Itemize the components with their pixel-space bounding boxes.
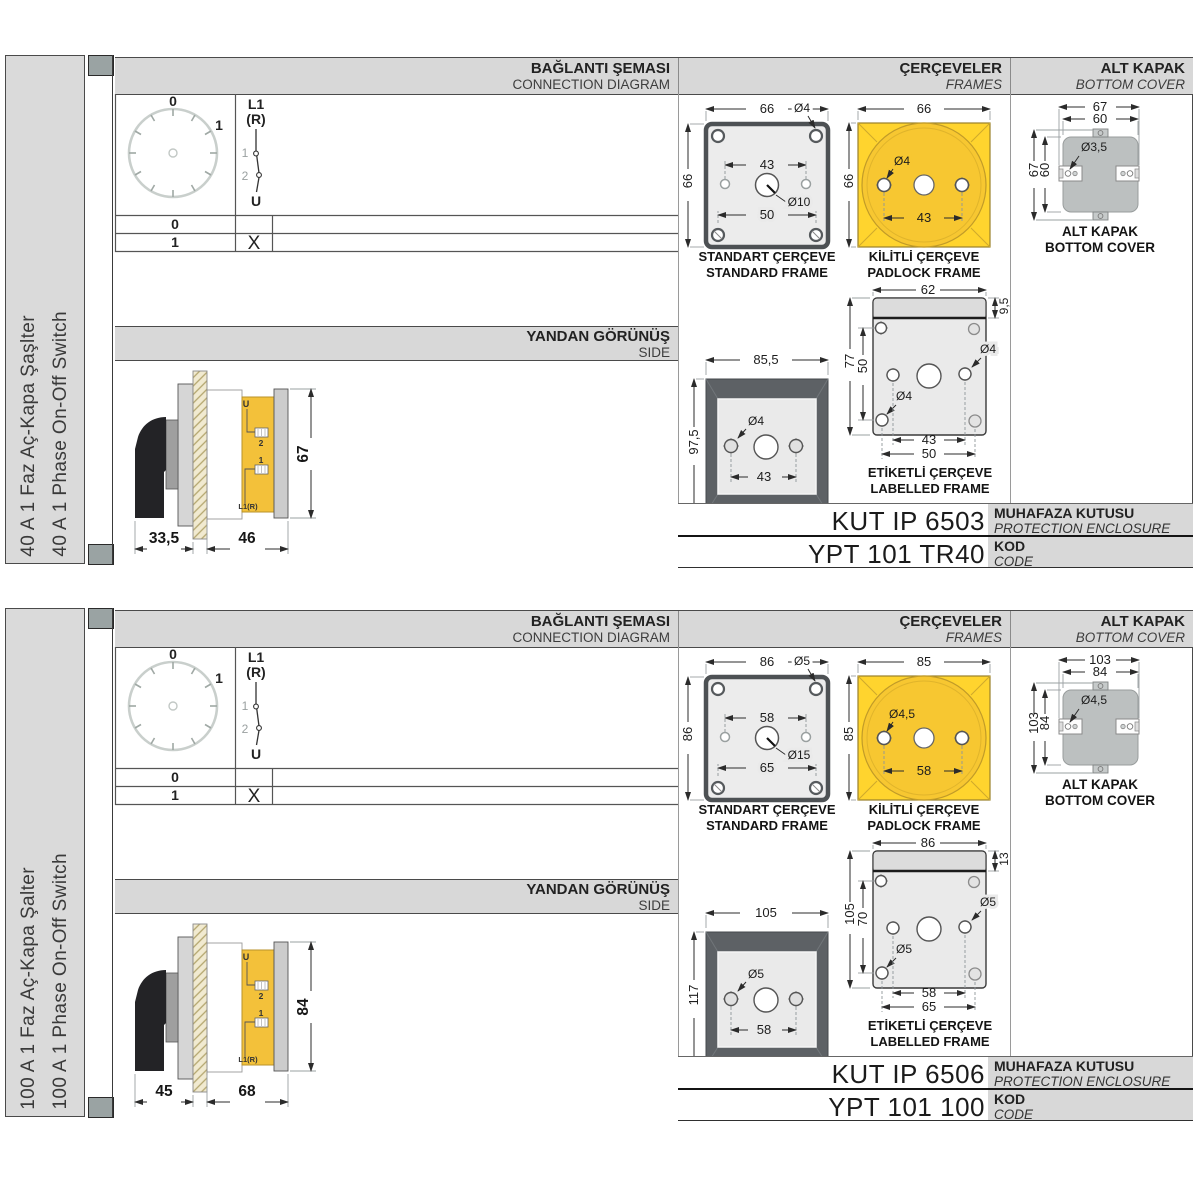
dim-handle-depth: 45 [155,1083,173,1100]
dim-hole-spacing: 58 [760,710,774,725]
dim-cover-width-inner: 60 [1093,111,1107,126]
table-pos-1: 1 [171,787,179,803]
dim-body-width: 68 [238,1083,256,1100]
mounting-panel [193,371,207,539]
dim-frame-width: 85 [917,654,931,669]
rotary-dial: 0 1 [129,646,223,750]
dim-cover-height-inner: 60 [1037,163,1052,177]
code-row: YPT 101 TR40 KOD CODE [678,537,1193,568]
code-label-en: CODE [994,554,1193,569]
handle-hub [166,973,178,1042]
table-mark-1: X [248,786,261,807]
catalog-page: 40 A 1 Faz Aç-Kapa Şaşlter 40 A 1 Phase … [0,0,1200,1121]
handle [135,417,166,518]
dim-hole-bottom: Ø4 [896,389,912,403]
dim-hole-mid: Ø4 [980,342,996,356]
terminal-2-label: 2 [259,438,264,448]
handle [135,970,166,1071]
labelled-frame-drawing: 86 13 105 70 Ø5 Ø5 58 65 ETİKETLİ ÇERÇEV… [840,840,1010,1052]
standard-frame-label-tr: STANDART ÇERÇEVE [699,802,836,817]
cover-divider [1010,647,1011,1056]
dim-hole: Ø4 [748,414,764,428]
binding-mark-bottom [88,544,114,565]
dim-cover-width-inner: 84 [1093,664,1107,679]
dial-position-1: 1 [215,670,223,686]
enclosure-label-en: PROTECTION ENCLOSURE [994,521,1193,536]
terminal-l1r-label: L1(R) [238,502,258,511]
dim-frame-height: 66 [841,174,856,188]
side-view-header-tr: YANDAN GÖRÜNÜŞ [115,881,670,898]
dim-bottom-inner: 43 [922,432,936,447]
code-label-tr: KOD [994,539,1193,554]
code-label: KOD CODE [988,537,1193,567]
terminal-1-label: 1 [259,1008,264,1018]
dim-handle-depth: 33,5 [149,530,180,547]
terminal-u-label: U [243,952,250,962]
dim-label-strip: 9,5 [997,297,1011,314]
dim-hole: Ø4 [894,154,910,168]
enclosure-label: MUHAFAZA KUTUSU PROTECTION ENCLOSURE [988,1057,1193,1088]
dial-position-1: 1 [215,117,223,133]
standard-frame-label-tr: STANDART ÇERÇEVE [699,249,836,264]
product-codes: KUT IP 6503 MUHAFAZA KUTUSU PROTECTION E… [678,503,1193,568]
dim-hole-bottom: Ø5 [896,942,912,956]
enclosure-row: KUT IP 6506 MUHAFAZA KUTUSU PROTECTION E… [678,1056,1193,1090]
dim-corner-hole: Ø4 [794,101,810,115]
side-view-drawing: U 2 1 L1(R) 45 68 84 [115,914,435,1121]
dim-hole: Ø4,5 [889,707,915,721]
code-label-tr: KOD [994,1092,1193,1107]
labelled-frame-label-en: LABELLED FRAME [870,1034,989,1049]
enclosure-code: KUT IP 6506 [678,1057,988,1088]
dim-body-width: 46 [238,530,256,547]
switching-table-values: 0 1 X [171,216,261,254]
dim-hole: Ø5 [748,967,764,981]
product-section: 100 A 1 Faz Aç-Kapa Şalter 100 A 1 Phase… [0,608,1200,1121]
code-label: KOD CODE [988,1090,1193,1120]
dim-frame-height: 85 [841,727,856,741]
dim-frame-height: 86 [680,727,695,741]
header-cover-tr: ALT KAPAK [1011,60,1185,77]
dim-bottom-inner: 58 [922,985,936,1000]
order-code: YPT 101 TR40 [678,537,988,567]
product-title-tr: 40 A 1 Faz Aç-Kapa Şaşlter [18,315,40,557]
enclosure-row: KUT IP 6503 MUHAFAZA KUTUSU PROTECTION E… [678,503,1193,537]
dim-corner-spacing: 65 [760,760,774,775]
switch-terminal-r: (R) [246,111,265,127]
code-row: YPT 101 100 KOD CODE [678,1090,1193,1121]
labelled-frame-label-tr: ETİKETLİ ÇERÇEVE [868,1018,993,1033]
frames-divider [678,647,679,1056]
dim-center-hole: Ø10 [788,195,811,209]
side-view-header: YANDAN GÖRÜNÜŞ SIDE [115,326,678,361]
product-title-bar: 40 A 1 Faz Aç-Kapa Şaşlter 40 A 1 Phase … [5,55,85,564]
standard-frame-label-en: STANDARD FRAME [706,265,828,280]
dim-frame-width: 85,5 [753,352,778,367]
enclosure-code: KUT IP 6503 [678,504,988,535]
cover-label-tr: ALT KAPAK [1062,777,1138,792]
code-label-en: CODE [994,1107,1193,1122]
table-pos-0: 0 [171,216,179,232]
enclosure-label-tr: MUHAFAZA KUTUSU [994,506,1193,521]
dim-hole-spacing: 43 [760,157,774,172]
left-divider [112,608,113,1117]
header-cover: ALT KAPAK BOTTOM COVER [1010,58,1193,94]
bottom-cover-drawing: 67 60 Ø3,5 67 60 ALT KAPAK BOTTOM COVER [1015,99,1195,259]
dim-hole-spacing: 43 [917,210,931,225]
switch-contact-1: 1 [242,699,249,713]
header-frames-en: FRAMES [679,77,1002,92]
standard-frame-drawing: 86 Ø5 86 58 Ø15 65 STANDART ÇERÇEVE STAN… [680,652,840,902]
frames-divider [678,94,679,503]
enclosure-label-tr: MUHAFAZA KUTUSU [994,1059,1193,1074]
header-cover: ALT KAPAK BOTTOM COVER [1010,611,1193,647]
connection-diagram: 0 1 L1 (R) 1 2 U 0 1 X [115,94,678,256]
dim-frame-width: 86 [921,835,935,850]
header-connection: BAĞLANTI ŞEMASI CONNECTION DIAGRAM [115,58,678,94]
table-pos-0: 0 [171,769,179,785]
standard-frame-label-en: STANDARD FRAME [706,818,828,833]
cover-label-en: BOTTOM COVER [1045,240,1155,255]
switch-spacer [207,390,242,519]
front-plate [178,384,193,526]
switch-contact-2: 2 [242,169,249,183]
standard-frame-drawing: 66 Ø4 66 43 Ø10 50 STANDART ÇERÇEVE STAN… [680,99,840,349]
labelled-frame-label-en: LABELLED FRAME [870,481,989,496]
header-frames-tr: ÇERÇEVELER [679,60,1002,77]
dim-hole-spacing: 58 [757,1022,771,1037]
handle-hub [166,420,178,489]
header-cover-tr: ALT KAPAK [1011,613,1185,630]
dim-hole-spacing-v: 50 [855,359,870,373]
dim-frame-width: 62 [921,282,935,297]
side-view-header-en: SIDE [115,345,670,360]
dim-hole-mid: Ø5 [980,895,996,909]
dim-bottom-outer: 65 [922,999,936,1014]
dim-corner-hole: Ø5 [794,654,810,668]
switching-table-values: 0 1 X [171,769,261,807]
dial-position-0: 0 [169,646,177,662]
switch-terminal-r: (R) [246,664,265,680]
switch-spacer [207,943,242,1072]
side-view-drawing: U 2 1 L1(R) 33,5 46 67 [115,361,435,568]
dim-cover-hole: Ø4,5 [1081,693,1107,707]
dim-hole-spacing: 43 [757,469,771,484]
header-connection-tr: BAĞLANTI ŞEMASI [115,613,670,630]
switch-terminal-l1: L1 [248,96,265,112]
dial-position-0: 0 [169,93,177,109]
front-plate [178,937,193,1079]
rear-plate [274,389,288,518]
dim-frame-height: 66 [680,174,695,188]
dim-hole-spacing: 58 [917,763,931,778]
header-frames: ÇERÇEVELER FRAMES [678,58,1010,94]
terminal-l1r-label: L1(R) [238,1055,258,1064]
side-view-header: YANDAN GÖRÜNÜŞ SIDE [115,879,678,914]
dim-bottom-outer: 50 [922,446,936,461]
switch-terminal-u: U [251,193,261,209]
dim-frame-width: 86 [760,654,774,669]
dim-cover-height-inner: 84 [1037,716,1052,730]
header-cover-en: BOTTOM COVER [1011,77,1185,92]
product-section: 40 A 1 Faz Aç-Kapa Şaşlter 40 A 1 Phase … [0,55,1200,568]
terminal-2-label: 2 [259,991,264,1001]
padlock-frame-label-en: PADLOCK FRAME [867,265,980,280]
header-frames-tr: ÇERÇEVELER [679,613,1002,630]
header-connection-en: CONNECTION DIAGRAM [115,630,670,645]
dim-frame-width: 66 [760,101,774,116]
order-code: YPT 101 100 [678,1090,988,1120]
rear-plate [274,942,288,1071]
header-cover-en: BOTTOM COVER [1011,630,1185,645]
header-connection-en: CONNECTION DIAGRAM [115,77,670,92]
section-header: BAĞLANTI ŞEMASI CONNECTION DIAGRAM ÇERÇE… [115,57,1193,95]
dim-center-hole: Ø15 [788,748,811,762]
table-pos-1: 1 [171,234,179,250]
table-mark-1: X [248,233,261,254]
dim-frame-height: 117 [686,985,701,1006]
product-title-en: 100 A 1 Phase On-Off Switch [50,853,72,1110]
dim-frame-width: 105 [755,905,777,920]
terminal-1-label: 1 [259,455,264,465]
side-view-header-en: SIDE [115,898,670,913]
switch-contact-1: 1 [242,146,249,160]
dim-label-strip: 13 [997,852,1011,866]
binding-mark-top [88,55,114,76]
dim-hole-spacing-v: 70 [855,912,870,926]
dim-body-height: 84 [295,998,312,1016]
dim-body-height: 67 [295,445,312,462]
header-connection-tr: BAĞLANTI ŞEMASI [115,60,670,77]
rotary-dial: 0 1 [129,93,223,197]
binding-mark-top [88,608,114,629]
labelled-frame-label-tr: ETİKETLİ ÇERÇEVE [868,465,993,480]
cover-label-tr: ALT KAPAK [1062,224,1138,239]
header-frames: ÇERÇEVELER FRAMES [678,611,1010,647]
header-connection: BAĞLANTI ŞEMASI CONNECTION DIAGRAM [115,611,678,647]
switch-contact-2: 2 [242,722,249,736]
side-view-header-tr: YANDAN GÖRÜNÜŞ [115,328,670,345]
enclosure-label-en: PROTECTION ENCLOSURE [994,1074,1193,1089]
dim-corner-spacing: 50 [760,207,774,222]
mounting-panel [193,924,207,1092]
labelled-frame-drawing: 62 9,5 77 50 Ø4 Ø4 43 50 ETİKETLİ ÇERÇEV… [840,287,1010,499]
padlock-frame-label-tr: KİLİTLİ ÇERÇEVE [869,249,980,264]
switch-symbol: L1 (R) 1 2 U [242,649,266,762]
cover-label-en: BOTTOM COVER [1045,793,1155,808]
padlock-frame-label-tr: KİLİTLİ ÇERÇEVE [869,802,980,817]
product-title-bar: 100 A 1 Faz Aç-Kapa Şalter 100 A 1 Phase… [5,608,85,1117]
padlock-frame-label-en: PADLOCK FRAME [867,818,980,833]
product-title-en: 40 A 1 Phase On-Off Switch [50,311,72,557]
header-frames-en: FRAMES [679,630,1002,645]
connection-diagram: 0 1 L1 (R) 1 2 U 0 1 X [115,647,678,809]
binding-mark-bottom [88,1097,114,1118]
bottom-cover-drawing: 103 84 Ø4,5 103 84 ALT KAPAK BOTTOM COVE… [1015,652,1195,812]
product-title-tr: 100 A 1 Faz Aç-Kapa Şalter [18,867,40,1110]
dim-frame-height: 97,5 [686,429,701,454]
switch-symbol: L1 (R) 1 2 U [242,96,266,209]
switch-terminal-l1: L1 [248,649,265,665]
left-divider [112,55,113,564]
dim-frame-width: 66 [917,101,931,116]
section-header: BAĞLANTI ŞEMASI CONNECTION DIAGRAM ÇERÇE… [115,610,1193,648]
dim-cover-hole: Ø3,5 [1081,140,1107,154]
enclosure-label: MUHAFAZA KUTUSU PROTECTION ENCLOSURE [988,504,1193,535]
terminal-u-label: U [243,399,250,409]
product-codes: KUT IP 6506 MUHAFAZA KUTUSU PROTECTION E… [678,1056,1193,1121]
switch-terminal-u: U [251,746,261,762]
